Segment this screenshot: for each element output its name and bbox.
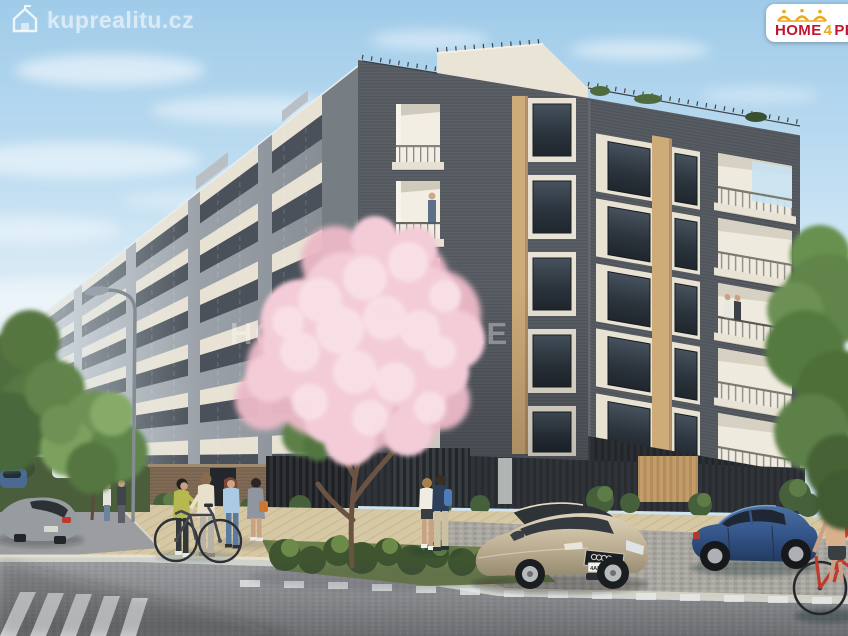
right-facade-windows xyxy=(596,133,700,469)
logo-word-number: 4 xyxy=(822,22,835,39)
logo-word-people: PEOPLE xyxy=(834,22,848,39)
render-scene: HOME 4 PEOPLE xyxy=(0,0,848,636)
crown-icon xyxy=(775,9,829,22)
listing-photo: HOME 4 PEOPLE xyxy=(0,0,848,636)
logo-word-home: HOME xyxy=(775,22,822,39)
agency-logo-text: HOME4PEOPLE xyxy=(775,23,848,38)
apartment-building-right-facade xyxy=(588,84,800,507)
agency-logo-badge: HOME4PEOPLE xyxy=(766,4,848,42)
